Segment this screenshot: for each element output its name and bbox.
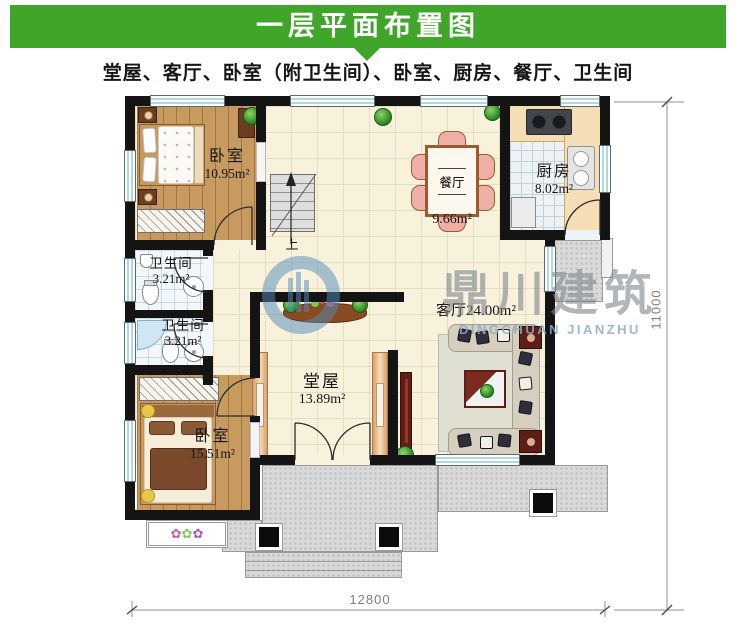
dining-room-label: 餐厅	[438, 168, 465, 195]
outside-area-right	[555, 302, 610, 465]
threshold-bath-top	[203, 256, 213, 290]
porch-main-left	[262, 465, 438, 552]
nightstand-lamp	[144, 193, 153, 202]
stairs-up-label: 上	[281, 238, 303, 253]
window	[124, 150, 136, 202]
nightstand	[138, 107, 157, 123]
kitchen-wall-left	[500, 96, 510, 233]
flower-icon: ✿	[171, 526, 182, 541]
room-label-hall: 堂屋 13.89m²	[282, 372, 362, 408]
room-area: 10.95m²	[187, 166, 267, 182]
window	[544, 246, 556, 292]
front-wall	[370, 455, 435, 465]
window	[124, 420, 136, 482]
flower-icon: ✿	[192, 526, 203, 541]
sofa-cushion	[518, 351, 533, 366]
room-name: 客厅	[436, 303, 466, 319]
porch-side-step	[601, 238, 613, 278]
flower-box: ✿✿✿	[146, 520, 228, 548]
window	[435, 454, 520, 466]
coffee-table	[464, 370, 506, 408]
room-label-bedroom-bottom: 卧室 15.51m²	[170, 428, 255, 462]
front-wall	[520, 455, 555, 465]
porch-main-right	[438, 465, 608, 512]
front-wall	[260, 455, 295, 465]
window	[150, 95, 225, 107]
dimension-label-height: 11000	[649, 280, 664, 340]
up-text: 上	[285, 237, 298, 252]
threshold-front-door	[295, 455, 370, 465]
threshold-kitchen-door	[565, 230, 600, 240]
window	[560, 95, 600, 107]
sofa-cushion	[457, 433, 472, 448]
tv-screen	[405, 379, 408, 443]
room-area: 13.89m²	[282, 392, 362, 408]
bolster-pillow	[141, 489, 155, 503]
flower-icon: ✿	[182, 526, 193, 541]
room-area: 9.66m²	[432, 212, 472, 227]
room-label-dining-area: 9.66m²	[420, 212, 484, 228]
porch-column	[379, 527, 399, 547]
side-table	[519, 326, 542, 349]
porch-left-extension	[222, 520, 262, 552]
decor-pillar	[372, 352, 388, 456]
dimension-label-width: 12800	[338, 592, 402, 607]
window	[124, 322, 136, 364]
window	[290, 95, 375, 107]
porch-steps	[245, 552, 402, 578]
threshold-bedroom-top	[214, 240, 256, 250]
window	[599, 145, 611, 193]
room-label-bedroom-top: 卧室 10.95m²	[187, 148, 267, 182]
basin-drain	[192, 350, 196, 354]
window	[124, 258, 136, 302]
room-area: 3.21m²	[150, 334, 216, 349]
porch-step-line	[246, 570, 401, 571]
nightstand-lamp	[144, 111, 153, 120]
room-name: 堂屋	[282, 372, 362, 392]
corridor-wall	[250, 292, 260, 378]
sofa-cushion	[518, 376, 532, 390]
bedroom-top-wall-bottom	[125, 240, 214, 250]
room-area: 24.00m²	[466, 303, 516, 319]
sofa-cushion	[518, 400, 533, 415]
side-table-decor	[527, 438, 535, 446]
wardrobe	[137, 209, 205, 233]
stairs	[270, 174, 315, 232]
room-list-subtitle: 堂屋、客厅、卧室（附卫生间）、卧室、厨房、餐厅、卫生间	[0, 58, 736, 85]
room-name: 厨房	[512, 163, 596, 181]
room-name: 卫生间	[138, 256, 204, 272]
exterior-wall-bottom-left	[125, 510, 260, 520]
room-name: 卫生间	[150, 318, 216, 334]
nightstand	[138, 189, 157, 205]
fridge	[511, 197, 536, 228]
dining-table: 餐厅	[425, 145, 479, 217]
bolster-pillow	[141, 404, 155, 418]
porch-column	[533, 493, 553, 513]
dining-chair	[477, 185, 495, 211]
room-name: 卧室	[187, 148, 267, 166]
porch-step-line	[246, 561, 401, 562]
window	[420, 95, 488, 107]
pillar-niche	[376, 383, 384, 427]
pillow	[142, 157, 157, 183]
room-label-living: 客厅24.00m²	[410, 303, 542, 320]
potted-plant	[374, 108, 392, 126]
bathroom-wall-right	[203, 250, 213, 256]
room-label-bath-top: 卫生间 3.21m²	[138, 256, 204, 286]
stove	[526, 109, 572, 135]
page-title: 一层平面布置图	[10, 5, 726, 48]
side-table	[519, 430, 542, 453]
tv-cabinet	[400, 372, 412, 450]
sofa-cushion	[497, 329, 510, 342]
porch-column	[259, 527, 279, 547]
sofa-cushion	[497, 433, 511, 447]
sofa-cushion	[475, 330, 490, 345]
room-name: 卧室	[170, 428, 255, 446]
bathroom-bottom-wall	[135, 365, 213, 375]
sofa-cushion	[457, 328, 472, 343]
room-area: 8.02m²	[512, 181, 596, 197]
dining-chair	[477, 154, 495, 180]
room-area: 15.51m²	[170, 446, 255, 462]
room-area: 3.21m²	[138, 272, 204, 287]
table-plant	[480, 384, 494, 398]
hall-north-wall	[256, 292, 404, 302]
bathroom-divider-wall	[135, 310, 213, 318]
side-table-decor	[527, 334, 535, 342]
room-label-kitchen: 厨房 8.02m²	[512, 163, 596, 196]
pillow	[142, 128, 157, 154]
porch-side-kitchen	[553, 240, 603, 302]
hall-living-partition	[388, 350, 398, 465]
sofa-cushion	[480, 436, 493, 449]
room-label-bath-bottom: 卫生间 3.21m²	[150, 318, 216, 348]
